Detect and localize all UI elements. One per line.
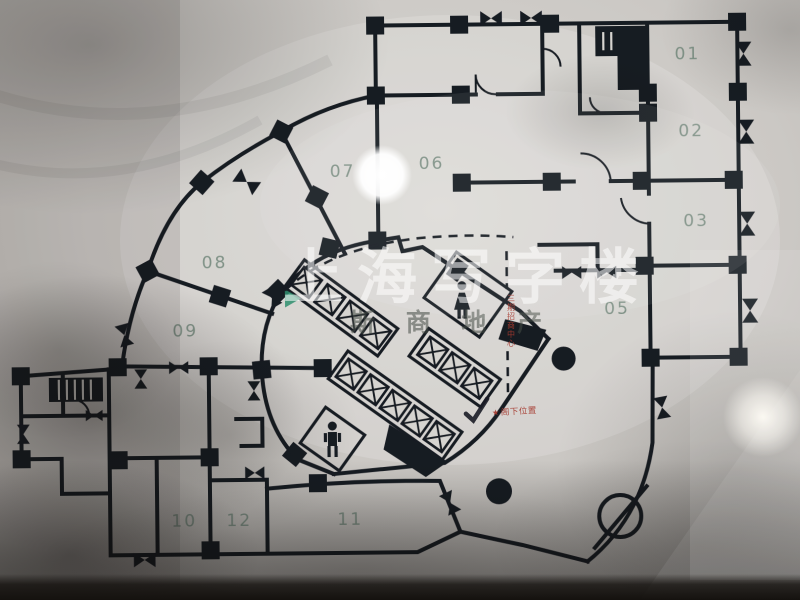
floor-plan-photo: 01 02 03 05 06 07 08 09 10 12 11 上海写字楼 斯… [0,0,800,600]
flash-reflection [352,145,412,205]
stamp-location-note: 阁下位置 [501,405,538,418]
room-label-08: 08 [202,253,228,273]
stamp-location-star: ★ [492,408,500,417]
photo-edge [0,574,800,600]
